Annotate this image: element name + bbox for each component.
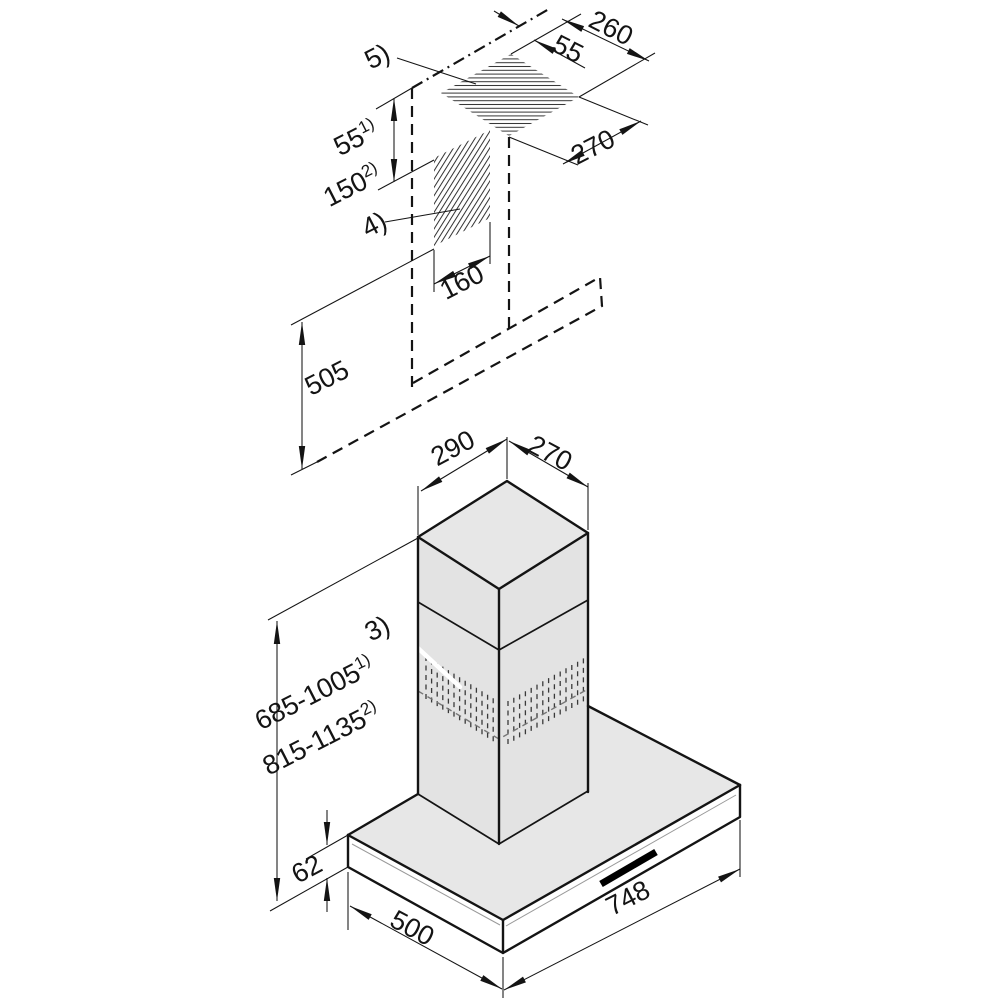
dim-wall-duct-height: 505	[300, 354, 354, 401]
dim-ceiling-clearance-2: 1502)	[318, 158, 386, 213]
ceiling-cutout-hatch	[441, 54, 579, 136]
wall-cutout-hatch	[434, 130, 490, 246]
hood-body-figure: 290 270 3) 685-10051) 815-11352) 62 500 …	[250, 424, 740, 998]
leader-ceiling-cutout	[397, 58, 476, 84]
dim-chimney-width: 290	[426, 424, 480, 472]
dim-chimney-depth: 270	[523, 429, 577, 477]
dim-wall-duct-width: 160	[435, 258, 489, 305]
dim-ceiling-offset-arrow-a	[494, 11, 519, 26]
dim-ceiling-width: 260	[584, 4, 638, 51]
dimension-diagram: 260 55 270 160 551) 1502) 505 5) 4)	[0, 0, 1000, 1000]
callout-ceiling-cutout: 5)	[360, 38, 395, 76]
callout-wall-cutout: 4)	[357, 206, 392, 244]
ceiling-wall-template: 260 55 270 160 551) 1502) 505 5) 4)	[291, 4, 655, 475]
dim-canopy-thickness: 62	[286, 849, 327, 890]
dim-ceiling-offset: 55	[548, 29, 588, 69]
dim-ceiling-clearance-1: 551)	[328, 114, 382, 162]
chimney-left-face	[418, 537, 499, 844]
callout-vent-slots: 3)	[360, 610, 395, 648]
installation-drawing-page: 260 55 270 160 551) 1502) 505 5) 4)	[0, 0, 1000, 1000]
